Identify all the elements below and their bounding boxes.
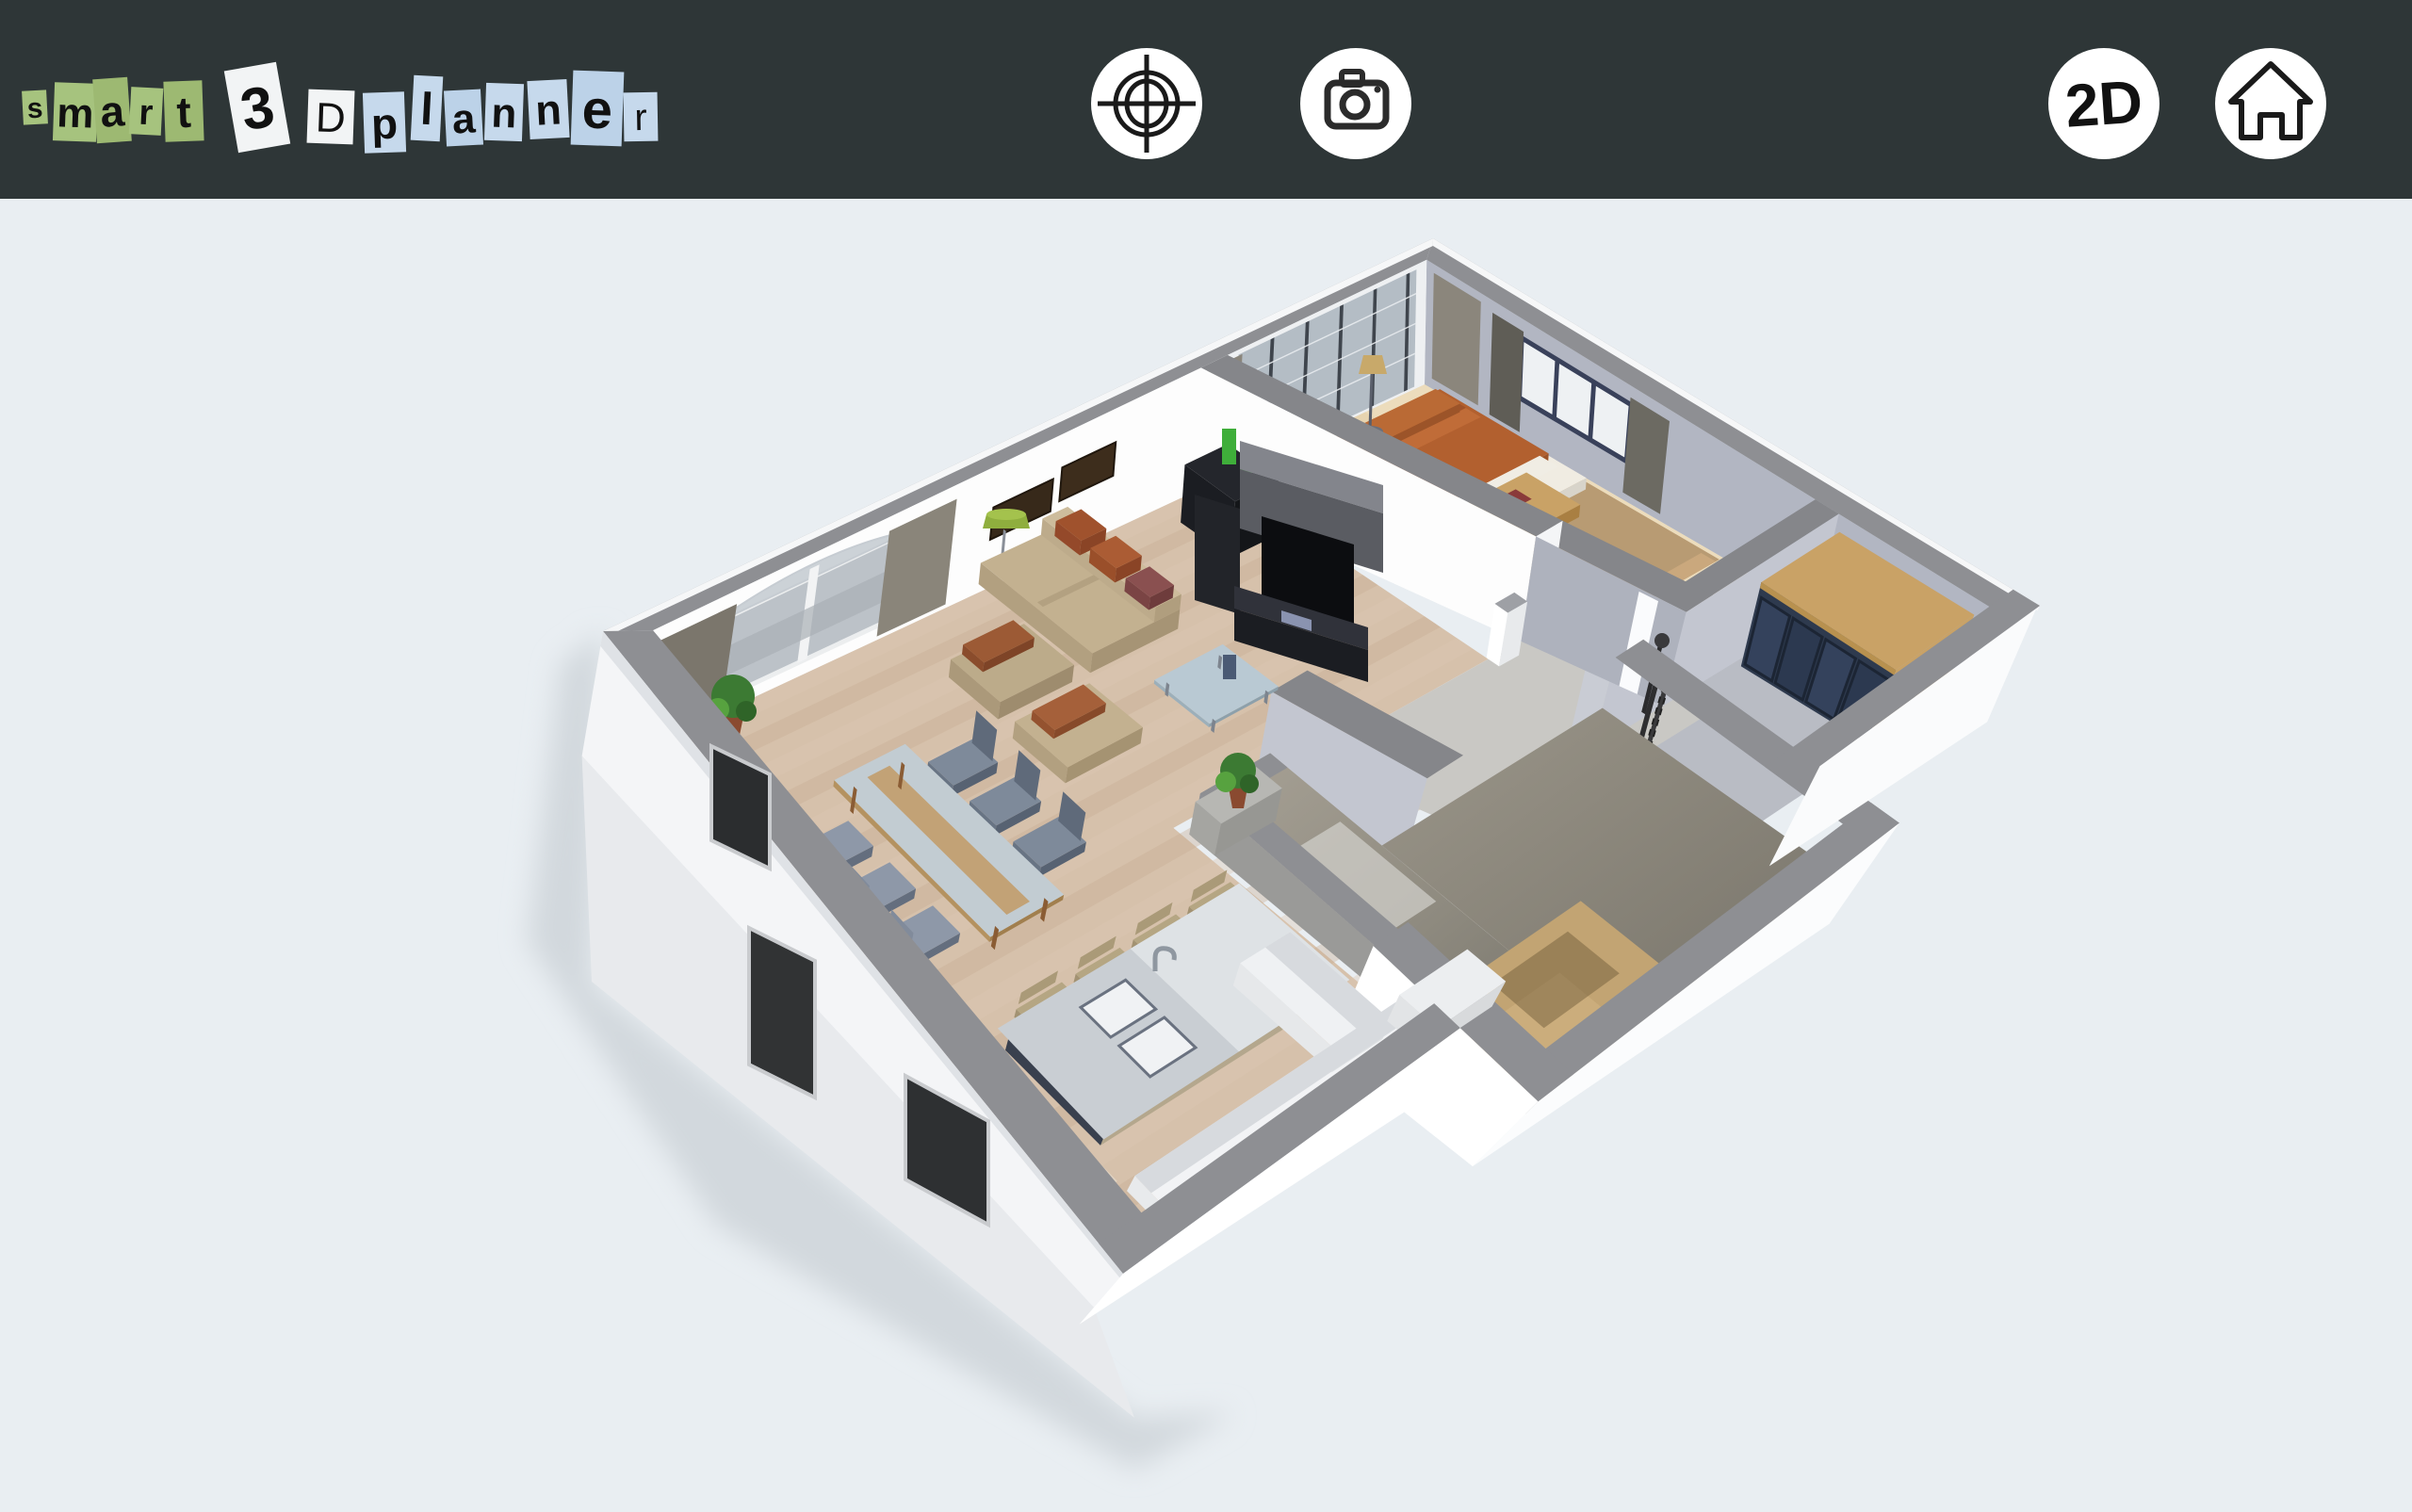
svg-text:p: p	[370, 99, 399, 149]
svg-text:D: D	[315, 94, 346, 141]
svg-text:n: n	[534, 85, 562, 134]
svg-text:l: l	[419, 85, 434, 136]
svg-text:n: n	[491, 90, 518, 138]
svg-text:t: t	[175, 88, 191, 138]
svg-text:2D: 2D	[2063, 67, 2145, 140]
svg-text:r: r	[634, 97, 647, 138]
svg-text:m: m	[57, 89, 95, 137]
svg-text:e: e	[581, 78, 614, 140]
svg-text:a: a	[98, 86, 126, 137]
svg-text:a: a	[451, 95, 478, 142]
svg-text:s: s	[26, 93, 43, 125]
svg-text:r: r	[138, 93, 154, 134]
